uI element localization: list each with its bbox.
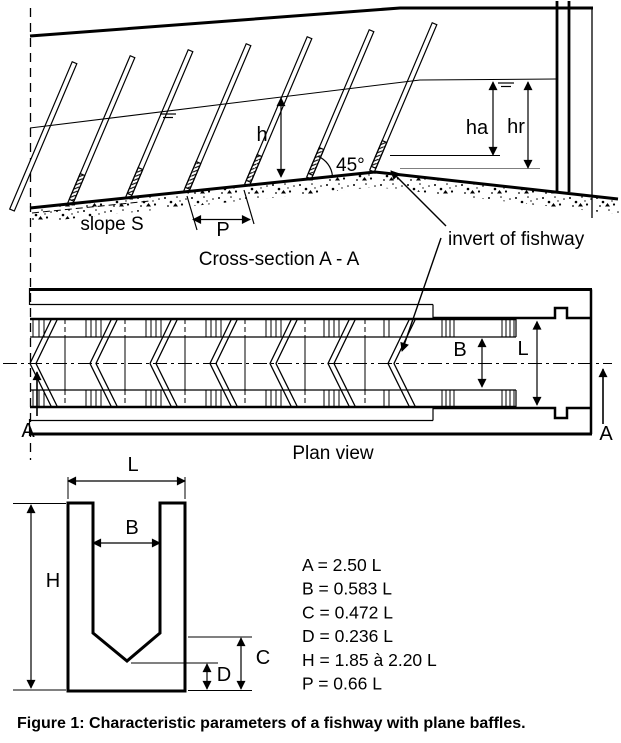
detail-d-label: D <box>217 664 231 686</box>
detail-l-dimension <box>68 477 185 499</box>
section-a-label-right: A <box>599 423 613 445</box>
cross-section-title: Cross-section A - A <box>199 249 360 270</box>
entrance-block-top <box>433 308 591 318</box>
detail-l-label: L <box>127 454 138 476</box>
baffle <box>184 44 251 193</box>
h-label: h <box>256 124 267 146</box>
pitch-label: P <box>216 219 229 241</box>
entrance-block-bottom <box>433 408 591 418</box>
detail-b-label: B <box>125 517 138 539</box>
plan-b-label: B <box>453 339 466 361</box>
parameter-item: H = 1.85 à 2.20 L <box>302 650 437 670</box>
baffle <box>245 37 312 186</box>
gate <box>557 1 569 192</box>
invert-label: invert of fishway <box>448 229 585 250</box>
parameter-list: A = 2.50 L B = 0.583 L C = 0.472 L D = 0… <box>302 555 437 694</box>
section-a-label-left: A <box>21 420 35 442</box>
plan-view-title: Plan view <box>292 443 374 464</box>
slope-label: slope S <box>80 214 143 235</box>
plan-l-label: L <box>517 338 528 360</box>
baffle <box>68 56 135 205</box>
figure-caption: Figure 1: Characteristic parameters of a… <box>17 715 605 733</box>
figure-page: h 45° ha hr slope S P invert of fishway … <box>0 0 621 743</box>
parameter-item: B = 0.583 L <box>302 579 392 599</box>
angle-label: 45° <box>336 155 365 176</box>
detail-h-label: H <box>46 570 60 592</box>
baffle <box>126 50 193 199</box>
baffle-detail-view: L B H C D A = 2.50 L B = 0.583 L C = 0.4… <box>13 454 437 694</box>
parameter-item: D = 0.236 L <box>302 626 393 646</box>
baffle <box>370 23 437 172</box>
fishway-figure: h 45° ha hr slope S P invert of fishway … <box>0 0 621 712</box>
parameter-item: P = 0.66 L <box>302 674 382 694</box>
plan-view: B L A A Plan view <box>3 288 613 464</box>
parameter-item: A = 2.50 L <box>302 555 382 575</box>
detail-c-label: C <box>256 647 270 669</box>
water-level-icon <box>498 83 514 87</box>
parameter-item: C = 0.472 L <box>302 602 393 622</box>
detail-d-dimension <box>131 663 218 689</box>
detail-h-dimension <box>13 504 66 691</box>
hr-label: hr <box>507 116 525 138</box>
invert-leader-arrows <box>391 171 446 351</box>
baffle <box>10 62 77 211</box>
ha-label: ha <box>466 117 489 139</box>
angle-arc <box>318 156 332 175</box>
channel-top-line <box>30 8 593 36</box>
